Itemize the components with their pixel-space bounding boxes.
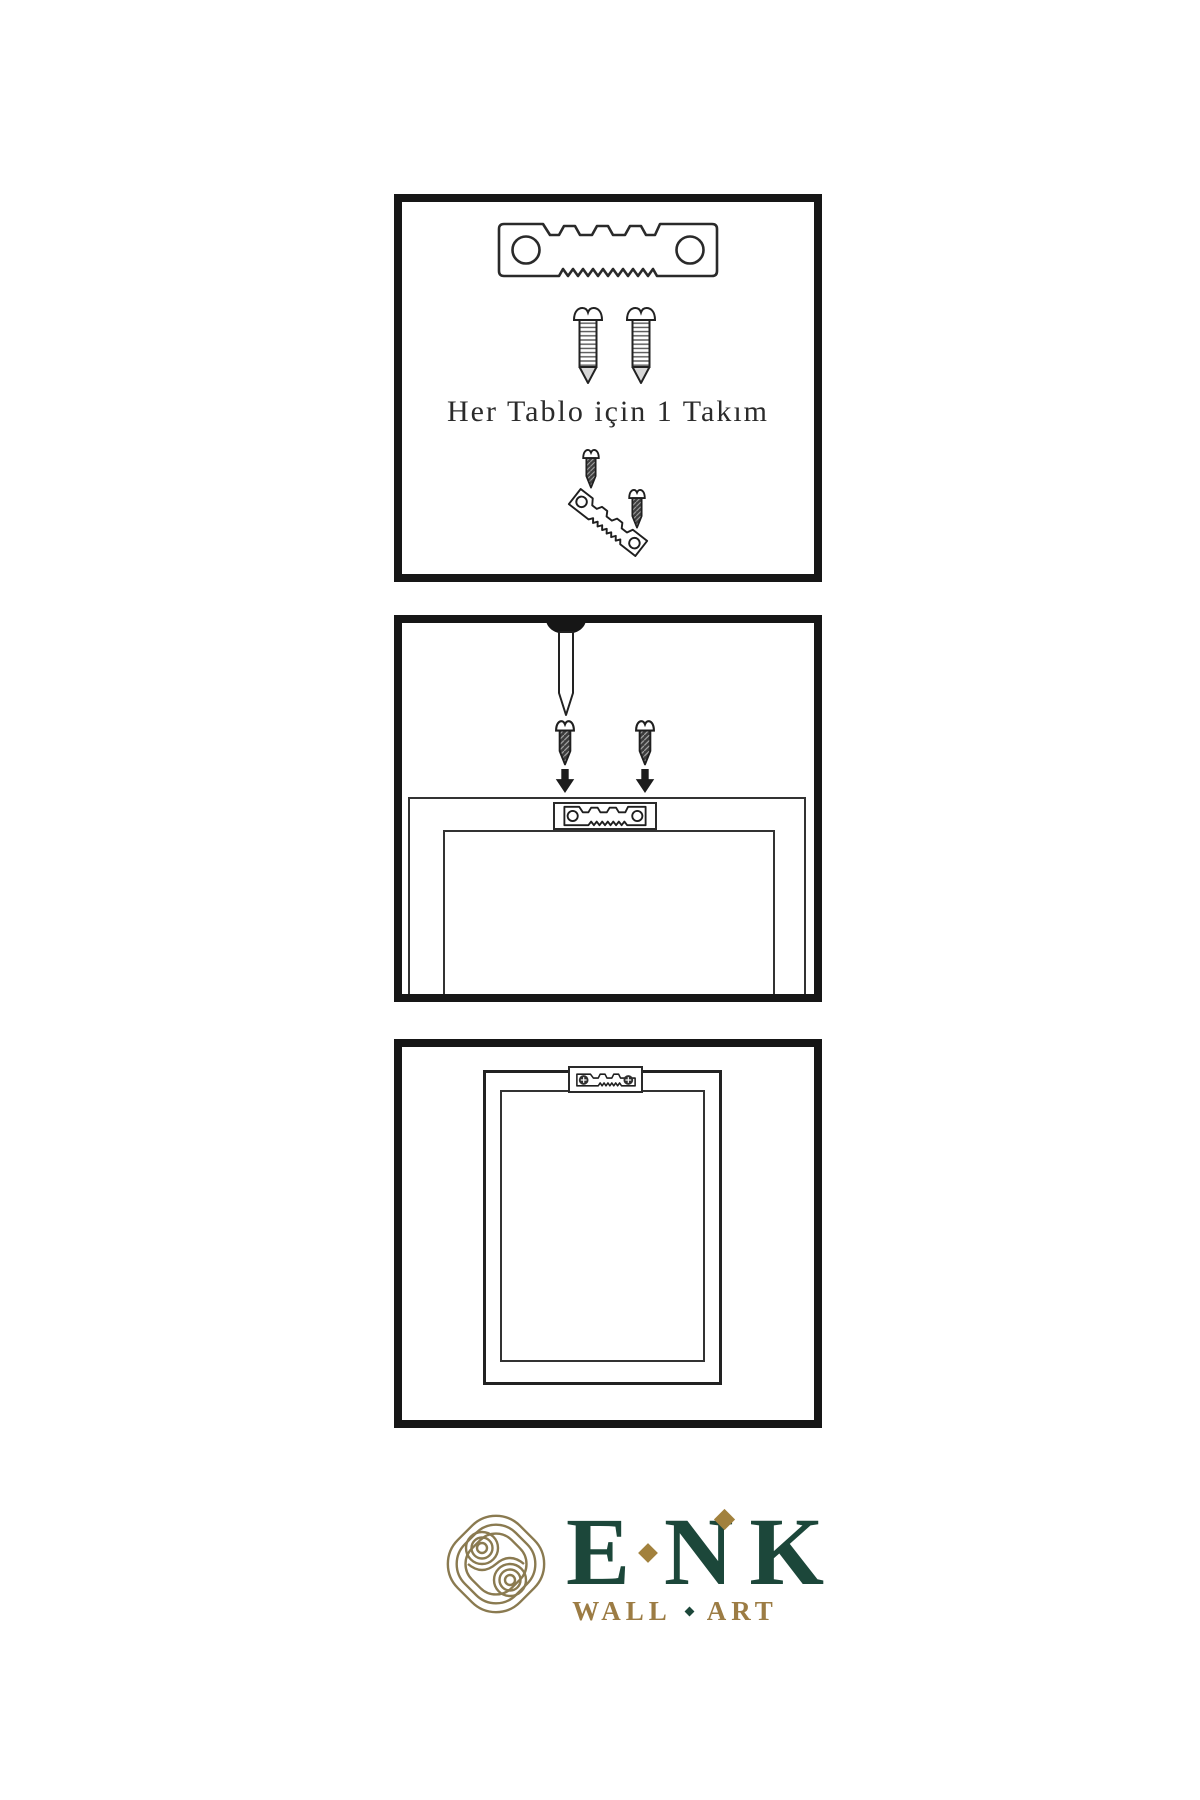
sawtooth-hanger-icon: [497, 222, 719, 278]
mounting-screw-icon: [624, 305, 658, 385]
down-arrow-icon: [555, 769, 575, 793]
dark-screw-icon: [632, 719, 658, 767]
dark-screw-icon: [552, 719, 578, 767]
wall-nail-icon: [544, 623, 588, 719]
brand-letter-k: K: [749, 1504, 826, 1600]
mounting-screw-icon: [571, 305, 605, 385]
small-diamond-icon: [684, 1607, 694, 1617]
instruction-sheet: Her Tablo için 1 Takım: [0, 0, 1200, 1800]
mounted-hanger-plate: [568, 1066, 643, 1093]
panel-kit-contents: Her Tablo için 1 Takım: [394, 194, 822, 582]
kit-caption: Her Tablo için 1 Takım: [402, 395, 814, 429]
panel-installation: [394, 615, 822, 1002]
hanger-plate: [553, 802, 657, 830]
brand-name: ENK: [566, 1504, 826, 1600]
small-screw-icon: [580, 448, 602, 490]
knot-icon: [430, 1498, 562, 1630]
brand-subtitle-word: WALL: [572, 1596, 672, 1627]
panel-mounted-result: [394, 1039, 822, 1428]
gold-diamond-icon: [638, 1543, 658, 1563]
brand-subtitle: WALL ART: [566, 1596, 784, 1627]
brand-logo: [430, 1498, 562, 1630]
brand-subtitle-word: ART: [707, 1596, 778, 1627]
screws-into-tilted-hanger-icon: [562, 448, 672, 564]
brand-letter-e: E: [566, 1504, 632, 1600]
panel-mounted-inner: [402, 1047, 814, 1420]
down-arrow-icon: [635, 769, 655, 793]
hung-frame-inner-edge: [500, 1090, 705, 1362]
mounted-hanger-icon: [573, 1070, 639, 1090]
panel-kit-inner: Her Tablo için 1 Takım: [402, 202, 814, 574]
frame-back-inner-edge: [443, 830, 775, 994]
panel-installation-inner: [402, 623, 814, 994]
sawtooth-hanger-small-icon: [557, 804, 653, 828]
